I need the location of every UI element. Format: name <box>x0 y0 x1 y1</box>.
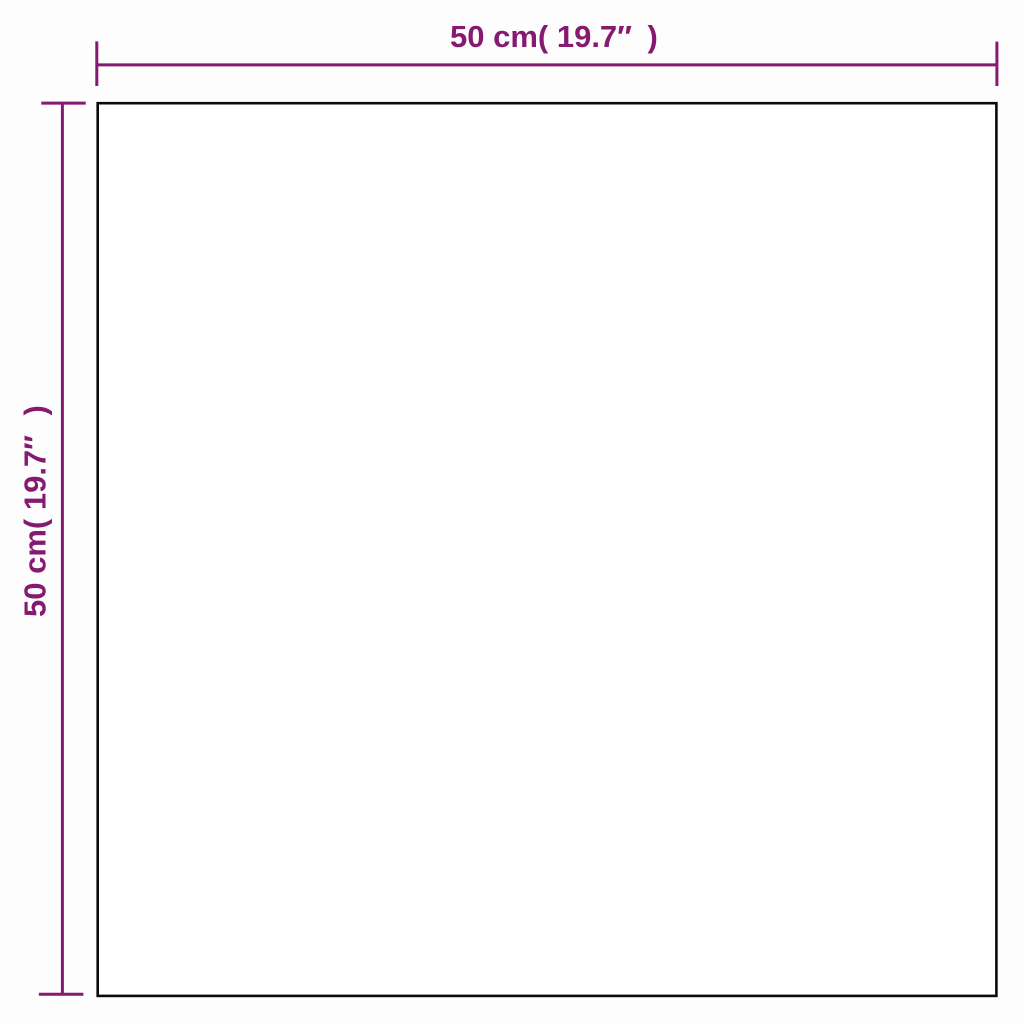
svg-text:): ) <box>648 19 658 54</box>
svg-text:50 cm( 19.7″: 50 cm( 19.7″ <box>17 435 52 617</box>
svg-text:): ) <box>17 405 52 415</box>
svg-text:50 cm( 19.7″: 50 cm( 19.7″ <box>450 19 632 54</box>
